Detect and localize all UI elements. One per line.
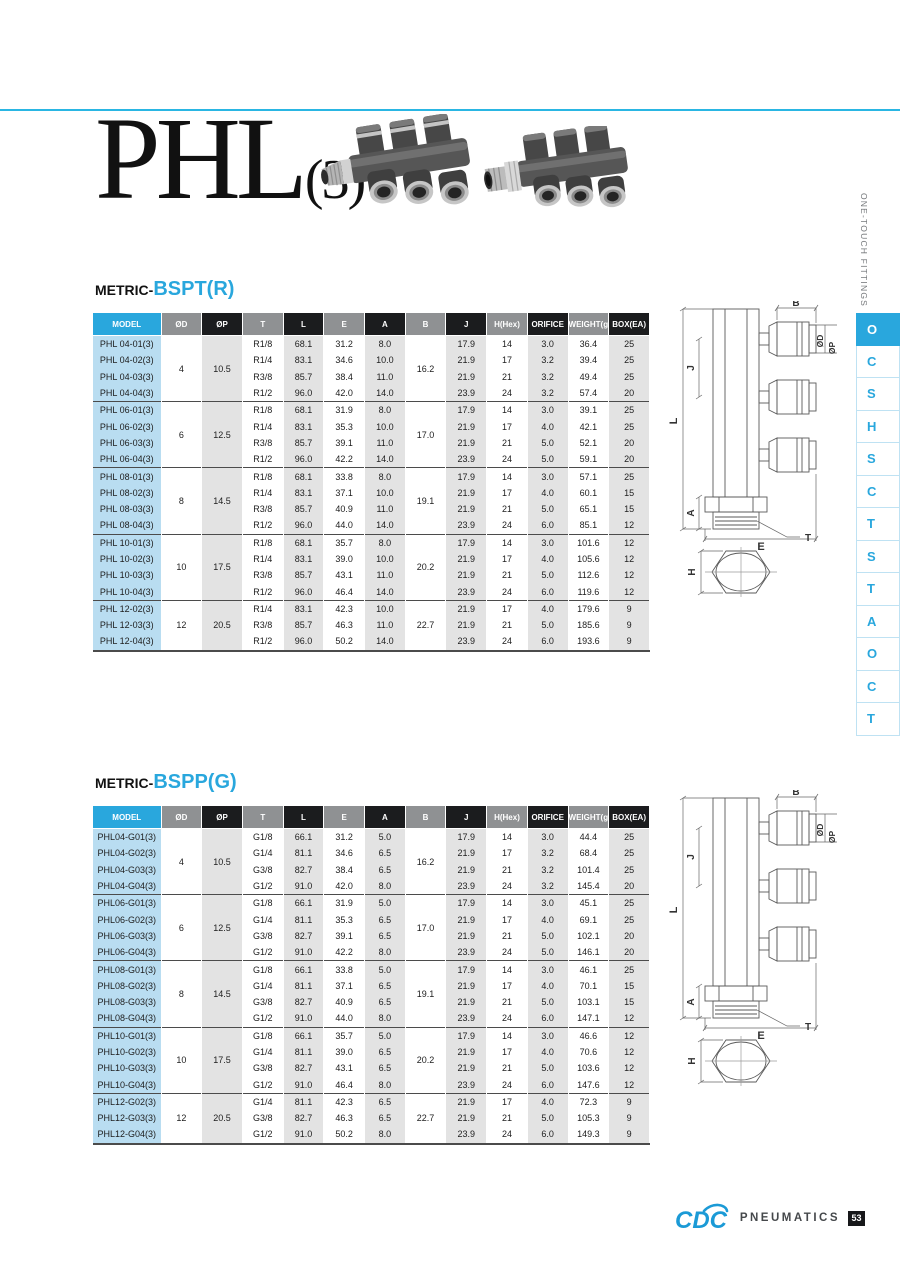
value-cell: 24: [487, 1076, 528, 1093]
model-cell: PHL10-G04(3): [93, 1076, 161, 1093]
value-cell: 46.1: [568, 961, 609, 978]
col-header: ORIFICE: [527, 806, 568, 829]
value-cell: 96.0: [283, 385, 324, 402]
value-cell: 11.0: [365, 435, 406, 451]
sidebar-tab-t-6[interactable]: T: [856, 508, 900, 541]
value-cell: 20: [609, 451, 650, 468]
value-cell: 31.9: [324, 402, 365, 419]
value-cell: 38.4: [324, 862, 365, 878]
dim-label-a: A: [686, 998, 697, 1005]
dim-label-j: J: [686, 854, 697, 860]
value-cell: 112.6: [568, 567, 609, 583]
value-cell: 4.0: [527, 485, 568, 501]
spec-table: MODELØDØPTLEABJH(Hex)ORIFICEWEIGHT(g)BOX…: [93, 313, 650, 652]
sidebar-tab-h-3[interactable]: H: [856, 411, 900, 444]
dim-label-op: ØP: [827, 342, 837, 355]
value-cell: 12: [609, 1010, 650, 1027]
sidebar-tab-a-9[interactable]: A: [856, 606, 900, 639]
value-cell: 5.0: [365, 829, 406, 846]
model-cell: PHL 06-04(3): [93, 451, 161, 468]
value-cell: 33.8: [324, 468, 365, 485]
section-prefix: METRIC-: [95, 282, 153, 298]
value-cell: 14.0: [365, 517, 406, 534]
value-cell: 105.6: [568, 551, 609, 567]
value-cell: 37.1: [324, 485, 365, 501]
col-header: B: [405, 313, 446, 336]
col-header: H(Hex): [487, 806, 528, 829]
value-cell: 17: [487, 978, 528, 994]
model-cell: PHL 06-03(3): [93, 435, 161, 451]
value-cell: G3/8: [242, 1060, 283, 1076]
value-cell: 19.1: [405, 468, 446, 534]
value-cell: 85.7: [283, 369, 324, 385]
value-cell: 21: [487, 617, 528, 633]
value-cell: 22.7: [405, 600, 446, 650]
value-cell: 35.3: [324, 418, 365, 434]
value-cell: 39.0: [324, 1044, 365, 1060]
col-header: ØD: [161, 806, 202, 829]
section-name: BSPP(G): [153, 771, 236, 794]
value-cell: 60.1: [568, 485, 609, 501]
value-cell: 50.2: [324, 1126, 365, 1143]
value-cell: 83.1: [283, 600, 324, 617]
value-cell: 4: [161, 829, 202, 895]
value-cell: 23.9: [446, 385, 487, 402]
value-cell: 21: [487, 435, 528, 451]
value-cell: 193.6: [568, 633, 609, 650]
value-cell: 37.1: [324, 978, 365, 994]
value-cell: 96.0: [283, 517, 324, 534]
sidebar-tab-c-1[interactable]: C: [856, 346, 900, 379]
value-cell: R1/2: [242, 385, 283, 402]
value-cell: 31.2: [324, 829, 365, 846]
model-cell: PHL 04-01(3): [93, 336, 161, 353]
value-cell: 12: [161, 600, 202, 650]
value-cell: 19.1: [405, 961, 446, 1027]
value-cell: 14: [487, 829, 528, 846]
value-cell: 5.0: [527, 944, 568, 961]
dimension-diagram: B ØD ØP J L A T E H: [653, 301, 845, 598]
model-cell: PHL12-G02(3): [93, 1093, 161, 1110]
value-cell: 34.6: [324, 352, 365, 368]
model-cell: PHL04-G03(3): [93, 862, 161, 878]
model-cell: PHL 10-03(3): [93, 567, 161, 583]
value-cell: 21.9: [446, 485, 487, 501]
brand-name: PNEUMATICS: [740, 1212, 840, 1224]
value-cell: R1/2: [242, 517, 283, 534]
col-header: A: [365, 806, 406, 829]
model-cell: PHL06-G02(3): [93, 911, 161, 927]
value-cell: 82.7: [283, 1060, 324, 1076]
value-cell: 21.9: [446, 1044, 487, 1060]
table-row: PHL 08-01(3)814.5R1/868.133.88.019.117.9…: [93, 468, 650, 485]
value-cell: 21.9: [446, 928, 487, 944]
value-cell: 8.0: [365, 534, 406, 551]
value-cell: 24: [487, 1126, 528, 1143]
value-cell: 4.0: [527, 1093, 568, 1110]
value-cell: 6.5: [365, 994, 406, 1010]
model-cell: PHL08-G02(3): [93, 978, 161, 994]
model-cell: PHL04-G04(3): [93, 878, 161, 895]
value-cell: 24: [487, 583, 528, 600]
spec-table-bspp: MODELØDØPTLEABJH(Hex)ORIFICEWEIGHT(g)BOX…: [93, 806, 650, 1145]
value-cell: 42.1: [568, 418, 609, 434]
model-cell: PHL 08-03(3): [93, 501, 161, 517]
model-cell: PHL10-G01(3): [93, 1027, 161, 1044]
value-cell: 35.7: [324, 534, 365, 551]
section-heading-bspp: METRIC- BSPP(G): [95, 771, 237, 794]
value-cell: 25: [609, 845, 650, 861]
value-cell: 82.7: [283, 1110, 324, 1126]
model-cell: PHL 10-01(3): [93, 534, 161, 551]
value-cell: R1/4: [242, 600, 283, 617]
value-cell: 21.9: [446, 352, 487, 368]
value-cell: 33.8: [324, 961, 365, 978]
value-cell: 46.3: [324, 1110, 365, 1126]
model-cell: PHL 06-02(3): [93, 418, 161, 434]
value-cell: 66.1: [283, 961, 324, 978]
value-cell: R1/8: [242, 468, 283, 485]
value-cell: 149.3: [568, 1126, 609, 1143]
value-cell: 6.5: [365, 862, 406, 878]
value-cell: 25: [609, 829, 650, 846]
sidebar-tab-s-4[interactable]: S: [856, 443, 900, 476]
value-cell: 42.0: [324, 878, 365, 895]
value-cell: 17.9: [446, 402, 487, 419]
dim-label-od: ØD: [815, 824, 825, 837]
dim-label-b: B: [792, 301, 799, 309]
table-row: PHL 06-01(3)612.5R1/868.131.98.017.017.9…: [93, 402, 650, 419]
value-cell: 82.7: [283, 862, 324, 878]
value-cell: 5.0: [527, 617, 568, 633]
model-cell: PHL 06-01(3): [93, 402, 161, 419]
value-cell: G1/4: [242, 1093, 283, 1110]
value-cell: 6.0: [527, 1010, 568, 1027]
value-cell: 14.5: [202, 468, 243, 534]
value-cell: 12: [161, 1093, 202, 1143]
value-cell: 10.5: [202, 829, 243, 895]
value-cell: 5.0: [527, 501, 568, 517]
value-cell: 21.9: [446, 567, 487, 583]
value-cell: 11.0: [365, 567, 406, 583]
value-cell: 83.1: [283, 352, 324, 368]
value-cell: 9: [609, 633, 650, 650]
page-number: 53: [848, 1211, 865, 1226]
value-cell: 8.0: [365, 1010, 406, 1027]
value-cell: 11.0: [365, 369, 406, 385]
value-cell: 43.1: [324, 1060, 365, 1076]
value-cell: 103.1: [568, 994, 609, 1010]
value-cell: 17: [487, 551, 528, 567]
model-cell: PHL08-G01(3): [93, 961, 161, 978]
value-cell: 83.1: [283, 551, 324, 567]
value-cell: 12: [609, 1076, 650, 1093]
value-cell: 21.9: [446, 1060, 487, 1076]
value-cell: R3/8: [242, 617, 283, 633]
model-cell: PHL06-G01(3): [93, 895, 161, 912]
value-cell: 5.0: [527, 1060, 568, 1076]
sidebar-tab-s-7[interactable]: S: [856, 541, 900, 574]
model-cell: PHL 12-02(3): [93, 600, 161, 617]
value-cell: 6.5: [365, 928, 406, 944]
value-cell: 20: [609, 385, 650, 402]
value-cell: 35.7: [324, 1027, 365, 1044]
value-cell: 57.4: [568, 385, 609, 402]
value-cell: 82.7: [283, 928, 324, 944]
value-cell: R1/4: [242, 551, 283, 567]
value-cell: 85.7: [283, 435, 324, 451]
value-cell: 17.5: [202, 534, 243, 600]
col-header: H(Hex): [487, 313, 528, 336]
col-header: L: [283, 806, 324, 829]
value-cell: 4: [161, 336, 202, 402]
value-cell: 3.0: [527, 1027, 568, 1044]
value-cell: 14: [487, 1027, 528, 1044]
value-cell: R1/8: [242, 336, 283, 353]
value-cell: 6.5: [365, 911, 406, 927]
value-cell: 185.6: [568, 617, 609, 633]
value-cell: 21.9: [446, 435, 487, 451]
value-cell: 8.0: [365, 402, 406, 419]
value-cell: 3.2: [527, 878, 568, 895]
value-cell: 91.0: [283, 1010, 324, 1027]
value-cell: 46.4: [324, 1076, 365, 1093]
value-cell: 83.1: [283, 418, 324, 434]
sidebar-vertical-label: ONE-TOUCH FITTINGS: [859, 193, 869, 301]
value-cell: 45.1: [568, 895, 609, 912]
model-cell: PHL 08-01(3): [93, 468, 161, 485]
value-cell: 9: [609, 1093, 650, 1110]
product-photo-bspt: [318, 114, 496, 218]
model-cell: PHL 08-04(3): [93, 517, 161, 534]
header-row: MODELØDØPTLEABJH(Hex)ORIFICEWEIGHT(g)BOX…: [93, 806, 650, 829]
value-cell: 21: [487, 567, 528, 583]
header-row: MODELØDØPTLEABJH(Hex)ORIFICEWEIGHT(g)BOX…: [93, 313, 650, 336]
value-cell: 70.6: [568, 1044, 609, 1060]
dim-label-h: H: [687, 1057, 698, 1064]
value-cell: 6.5: [365, 845, 406, 861]
section-heading-bspt: METRIC- BSPT(R): [95, 278, 234, 301]
value-cell: 39.1: [324, 435, 365, 451]
value-cell: 24: [487, 878, 528, 895]
value-cell: 3.2: [527, 862, 568, 878]
value-cell: 20.2: [405, 1027, 446, 1093]
value-cell: 20: [609, 435, 650, 451]
value-cell: 25: [609, 352, 650, 368]
value-cell: 68.1: [283, 534, 324, 551]
col-header: WEIGHT(g): [568, 313, 609, 336]
value-cell: 57.1: [568, 468, 609, 485]
value-cell: 3.0: [527, 961, 568, 978]
sidebar-tab-o-0[interactable]: O: [856, 313, 900, 346]
page-footer: CDC PNEUMATICS 53: [640, 1202, 865, 1234]
table-row: PHL04-G01(3)410.5G1/866.131.25.016.217.9…: [93, 829, 650, 846]
dim-label-e: E: [757, 541, 764, 553]
value-cell: 23.9: [446, 633, 487, 650]
value-cell: 21.9: [446, 862, 487, 878]
value-cell: 46.6: [568, 1027, 609, 1044]
value-cell: 12: [609, 1044, 650, 1060]
col-header: ØD: [161, 313, 202, 336]
sidebar-tab-t-12[interactable]: T: [856, 703, 900, 736]
model-cell: PHL 04-02(3): [93, 352, 161, 368]
value-cell: 4.0: [527, 418, 568, 434]
value-cell: R1/2: [242, 583, 283, 600]
model-cell: PHL 12-04(3): [93, 633, 161, 650]
value-cell: 14.0: [365, 583, 406, 600]
value-cell: 15: [609, 501, 650, 517]
value-cell: 16.2: [405, 829, 446, 895]
value-cell: 85.7: [283, 617, 324, 633]
value-cell: 147.6: [568, 1076, 609, 1093]
col-header: J: [446, 806, 487, 829]
model-cell: PHL12-G03(3): [93, 1110, 161, 1126]
value-cell: 85.7: [283, 567, 324, 583]
table-row: PHL06-G01(3)612.5G1/866.131.95.017.017.9…: [93, 895, 650, 912]
value-cell: 22.7: [405, 1093, 446, 1143]
value-cell: G1/4: [242, 845, 283, 861]
dim-label-b: B: [792, 790, 799, 798]
value-cell: 49.4: [568, 369, 609, 385]
value-cell: 5.0: [365, 1027, 406, 1044]
sidebar-tab-t-8[interactable]: T: [856, 573, 900, 606]
value-cell: 96.0: [283, 633, 324, 650]
model-cell: PHL 04-03(3): [93, 369, 161, 385]
value-cell: 8.0: [365, 878, 406, 895]
value-cell: 6: [161, 402, 202, 468]
value-cell: 21: [487, 862, 528, 878]
table-row: PHL 10-01(3)1017.5R1/868.135.78.020.217.…: [93, 534, 650, 551]
model-cell: PHL06-G04(3): [93, 944, 161, 961]
value-cell: 83.1: [283, 485, 324, 501]
value-cell: 81.1: [283, 1093, 324, 1110]
value-cell: G3/8: [242, 928, 283, 944]
value-cell: 81.1: [283, 911, 324, 927]
table-row: PHL08-G01(3)814.5G1/866.133.85.019.117.9…: [93, 961, 650, 978]
value-cell: 6: [161, 895, 202, 961]
value-cell: 10.5: [202, 336, 243, 402]
value-cell: G3/8: [242, 1110, 283, 1126]
value-cell: 23.9: [446, 878, 487, 895]
value-cell: 91.0: [283, 878, 324, 895]
value-cell: 96.0: [283, 583, 324, 600]
value-cell: 4.0: [527, 1044, 568, 1060]
value-cell: 17: [487, 1093, 528, 1110]
value-cell: 9: [609, 600, 650, 617]
value-cell: 6.5: [365, 1093, 406, 1110]
value-cell: G1/4: [242, 911, 283, 927]
value-cell: 20: [609, 928, 650, 944]
value-cell: 5.0: [365, 961, 406, 978]
model-cell: PHL10-G02(3): [93, 1044, 161, 1060]
value-cell: R1/2: [242, 633, 283, 650]
col-header: T: [242, 806, 283, 829]
dim-label-h: H: [687, 568, 698, 575]
value-cell: 5.0: [527, 435, 568, 451]
dim-label-e: E: [757, 1030, 764, 1042]
value-cell: 35.3: [324, 911, 365, 927]
value-cell: 5.0: [527, 451, 568, 468]
value-cell: 42.0: [324, 385, 365, 402]
value-cell: 17.9: [446, 468, 487, 485]
value-cell: 23.9: [446, 517, 487, 534]
value-cell: 12: [609, 534, 650, 551]
value-cell: 14: [487, 468, 528, 485]
value-cell: 101.6: [568, 534, 609, 551]
sidebar-tab-c-5[interactable]: C: [856, 476, 900, 509]
value-cell: 66.1: [283, 1027, 324, 1044]
value-cell: 9: [609, 1110, 650, 1126]
col-header: E: [324, 806, 365, 829]
sidebar-tab-strip: OCSHSCTSTAOCT: [856, 313, 900, 736]
table-row: PHL12-G02(3)1220.5G1/481.142.36.522.721.…: [93, 1093, 650, 1110]
value-cell: 12: [609, 567, 650, 583]
value-cell: 14: [487, 336, 528, 353]
value-cell: 105.3: [568, 1110, 609, 1126]
value-cell: 17: [487, 485, 528, 501]
value-cell: 39.0: [324, 551, 365, 567]
value-cell: G1/8: [242, 1027, 283, 1044]
value-cell: 17: [487, 845, 528, 861]
value-cell: 24: [487, 451, 528, 468]
value-cell: 3.0: [527, 895, 568, 912]
dim-label-a: A: [686, 509, 697, 516]
value-cell: 3.2: [527, 369, 568, 385]
value-cell: R3/8: [242, 567, 283, 583]
value-cell: 14.0: [365, 451, 406, 468]
table-row: PHL 04-01(3)410.5R1/868.131.28.016.217.9…: [93, 336, 650, 353]
value-cell: 21.9: [446, 551, 487, 567]
value-cell: 25: [609, 369, 650, 385]
dim-label-l: L: [668, 417, 680, 424]
dim-label-od: ØD: [815, 335, 825, 348]
sidebar-tab-o-10[interactable]: O: [856, 638, 900, 671]
table-row: PHL10-G01(3)1017.5G1/866.135.75.020.217.…: [93, 1027, 650, 1044]
value-cell: 12: [609, 551, 650, 567]
value-cell: 17.9: [446, 829, 487, 846]
value-cell: 82.7: [283, 994, 324, 1010]
value-cell: 9: [609, 1126, 650, 1143]
value-cell: 68.1: [283, 336, 324, 353]
value-cell: 4.0: [527, 978, 568, 994]
value-cell: 102.1: [568, 928, 609, 944]
value-cell: 103.6: [568, 1060, 609, 1076]
value-cell: 25: [609, 961, 650, 978]
model-cell: PHL06-G03(3): [93, 928, 161, 944]
value-cell: 25: [609, 895, 650, 912]
sidebar-tab-s-2[interactable]: S: [856, 378, 900, 411]
model-cell: PHL08-G04(3): [93, 1010, 161, 1027]
value-cell: 3.2: [527, 385, 568, 402]
value-cell: R1/4: [242, 485, 283, 501]
value-cell: 21.9: [446, 911, 487, 927]
value-cell: 17.5: [202, 1027, 243, 1093]
value-cell: 12.5: [202, 402, 243, 468]
value-cell: 5.0: [527, 928, 568, 944]
sidebar-tab-c-11[interactable]: C: [856, 671, 900, 704]
value-cell: 24: [487, 1010, 528, 1027]
value-cell: 10.0: [365, 352, 406, 368]
model-cell: PHL04-G02(3): [93, 845, 161, 861]
value-cell: 20.5: [202, 600, 243, 650]
dimension-diagram: B ØD ØP J L A T E H: [653, 790, 845, 1087]
value-cell: 46.4: [324, 583, 365, 600]
value-cell: R1/4: [242, 418, 283, 434]
value-cell: 6.5: [365, 1060, 406, 1076]
value-cell: 14: [487, 961, 528, 978]
value-cell: 20: [609, 878, 650, 895]
value-cell: 16.2: [405, 336, 446, 402]
